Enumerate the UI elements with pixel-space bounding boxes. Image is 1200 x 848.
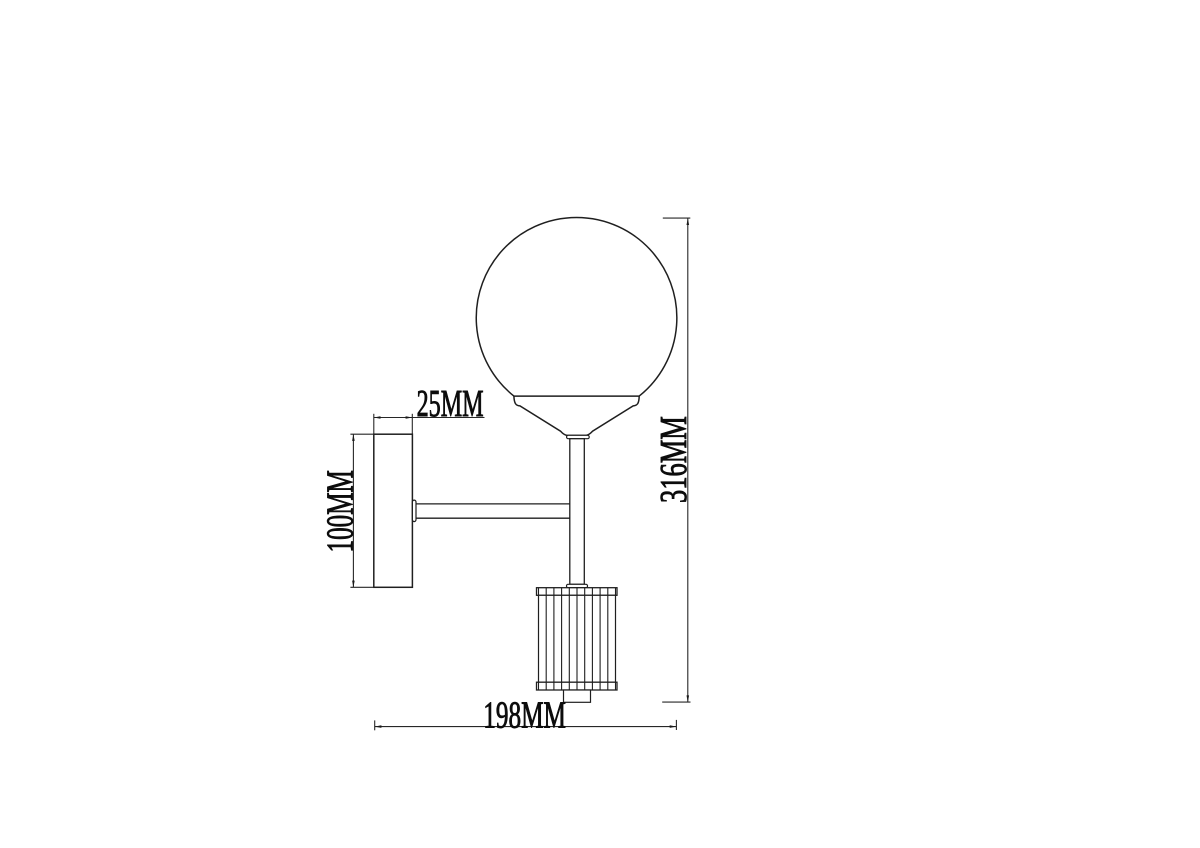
- svg-text:316MM: 316MM: [653, 416, 695, 503]
- svg-text:100MM: 100MM: [320, 470, 362, 552]
- svg-text:25MM: 25MM: [417, 383, 484, 425]
- svg-text:198MM: 198MM: [483, 695, 566, 737]
